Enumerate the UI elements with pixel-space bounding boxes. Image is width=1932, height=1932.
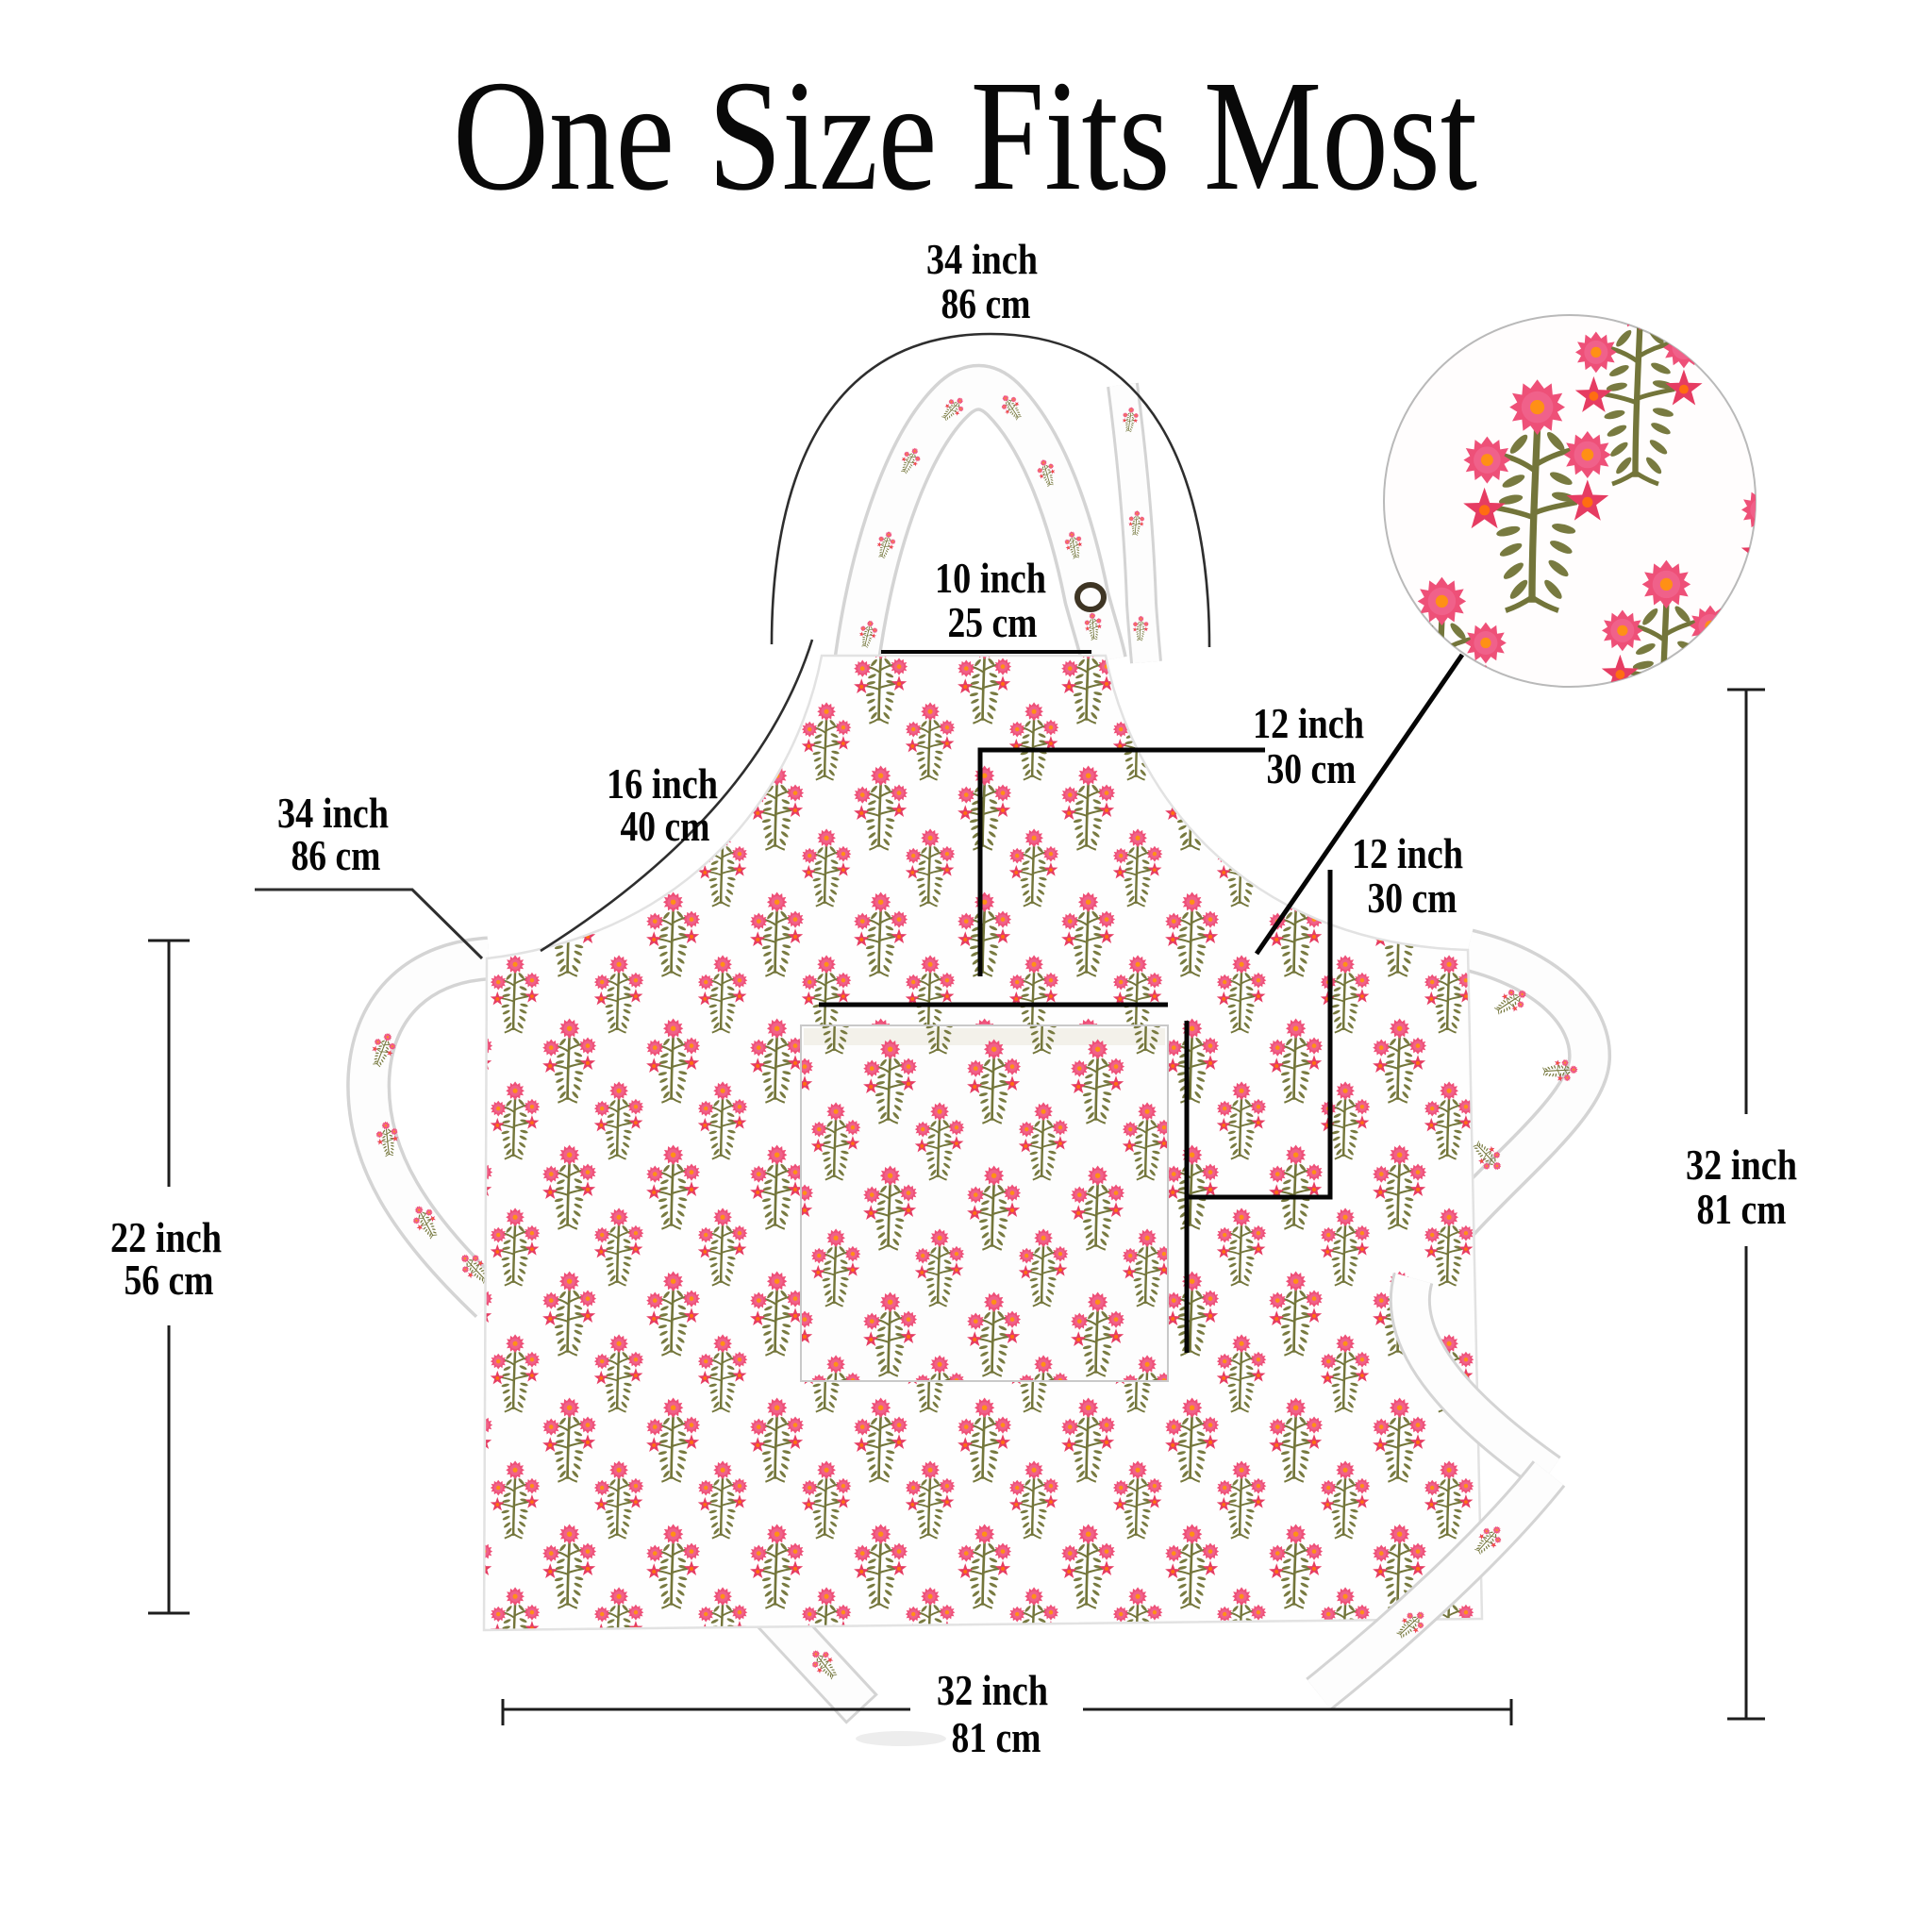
svg-text:12 inch: 12 inch [1352, 829, 1463, 877]
svg-text:81 cm: 81 cm [952, 1713, 1041, 1761]
svg-text:86 cm: 86 cm [941, 279, 1031, 327]
svg-text:One Size Fits Most: One Size Fits Most [453, 48, 1477, 224]
svg-text:34 inch: 34 inch [926, 235, 1038, 283]
svg-text:81 cm: 81 cm [1697, 1185, 1787, 1233]
svg-text:56 cm: 56 cm [125, 1256, 214, 1304]
svg-text:32 inch: 32 inch [1686, 1141, 1797, 1189]
svg-text:40 cm: 40 cm [621, 802, 710, 850]
svg-text:86 cm: 86 cm [291, 831, 381, 879]
svg-text:30 cm: 30 cm [1267, 744, 1357, 792]
svg-text:34 inch: 34 inch [277, 789, 389, 837]
svg-text:25 cm: 25 cm [948, 598, 1038, 646]
svg-text:16 inch: 16 inch [607, 759, 718, 808]
svg-text:22 inch: 22 inch [110, 1213, 222, 1261]
svg-text:30 cm: 30 cm [1368, 874, 1457, 922]
svg-text:32 inch: 32 inch [937, 1666, 1048, 1714]
svg-text:12 inch: 12 inch [1253, 699, 1364, 747]
svg-text:10 inch: 10 inch [935, 554, 1046, 602]
